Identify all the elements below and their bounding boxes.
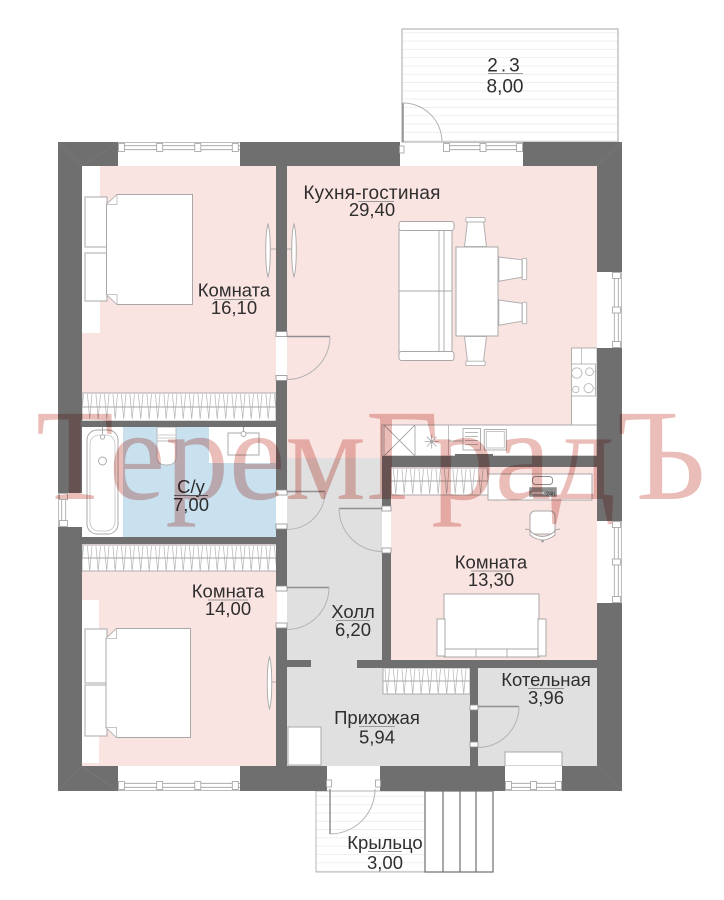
svg-text:13,30: 13,30 (468, 569, 514, 590)
svg-text:5,94: 5,94 (359, 727, 395, 748)
svg-text:16,10: 16,10 (211, 297, 257, 318)
svg-text:Крыльцо: Крыльцо (347, 832, 422, 853)
svg-text:14,00: 14,00 (205, 598, 251, 619)
svg-text:Прихожая: Прихожая (334, 707, 420, 728)
svg-text:3,00: 3,00 (367, 852, 403, 873)
svg-text:29,40: 29,40 (349, 199, 395, 220)
svg-text:3,96: 3,96 (528, 687, 564, 708)
svg-text:8,00: 8,00 (487, 77, 524, 98)
svg-text:6,20: 6,20 (335, 619, 371, 640)
